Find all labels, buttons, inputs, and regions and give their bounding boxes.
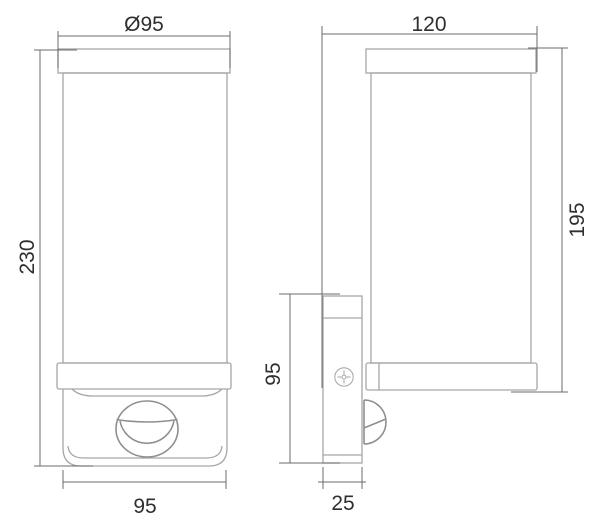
drawing-canvas: Ø95 120 230 195 95 95 25 (0, 0, 600, 520)
dim-side-height (511, 48, 568, 392)
dim-front-base-width (63, 470, 226, 489)
sensor-bezel (116, 401, 178, 457)
sensor-chord (117, 420, 178, 423)
dim-label-front-height: 230 (16, 239, 39, 274)
dome-equator-line (364, 419, 386, 428)
pir-sensor-front (116, 401, 178, 457)
dim-bracket-height (279, 294, 340, 463)
dim-label-front-base-width: 95 (133, 495, 156, 518)
mounting-screw (335, 368, 353, 386)
dim-bracket-depth (318, 467, 366, 489)
dim-label-bracket-depth: 25 (331, 492, 354, 515)
screw-center (342, 375, 346, 379)
dim-label-side-height: 195 (566, 202, 589, 237)
side-lower-band (366, 363, 537, 390)
side-body (371, 73, 531, 363)
pir-sensor-side (364, 400, 386, 444)
front-top-cap (58, 49, 230, 73)
front-lower-band (57, 363, 231, 389)
dim-label-front-diameter: Ø95 (124, 13, 164, 36)
dim-label-bracket-height: 95 (262, 362, 285, 385)
dimension-drawing: Ø95 120 230 195 95 95 25 (0, 0, 600, 520)
front-body (63, 73, 227, 363)
dim-label-side-depth: 120 (411, 13, 446, 36)
front-band-lip (72, 389, 222, 396)
wall-plate (323, 296, 362, 463)
side-top-cap (366, 49, 536, 73)
dome-arc (364, 400, 386, 444)
sensor-lens-dome (120, 421, 174, 443)
side-view (323, 49, 537, 463)
dim-side-depth (322, 26, 537, 388)
front-view (57, 49, 231, 466)
